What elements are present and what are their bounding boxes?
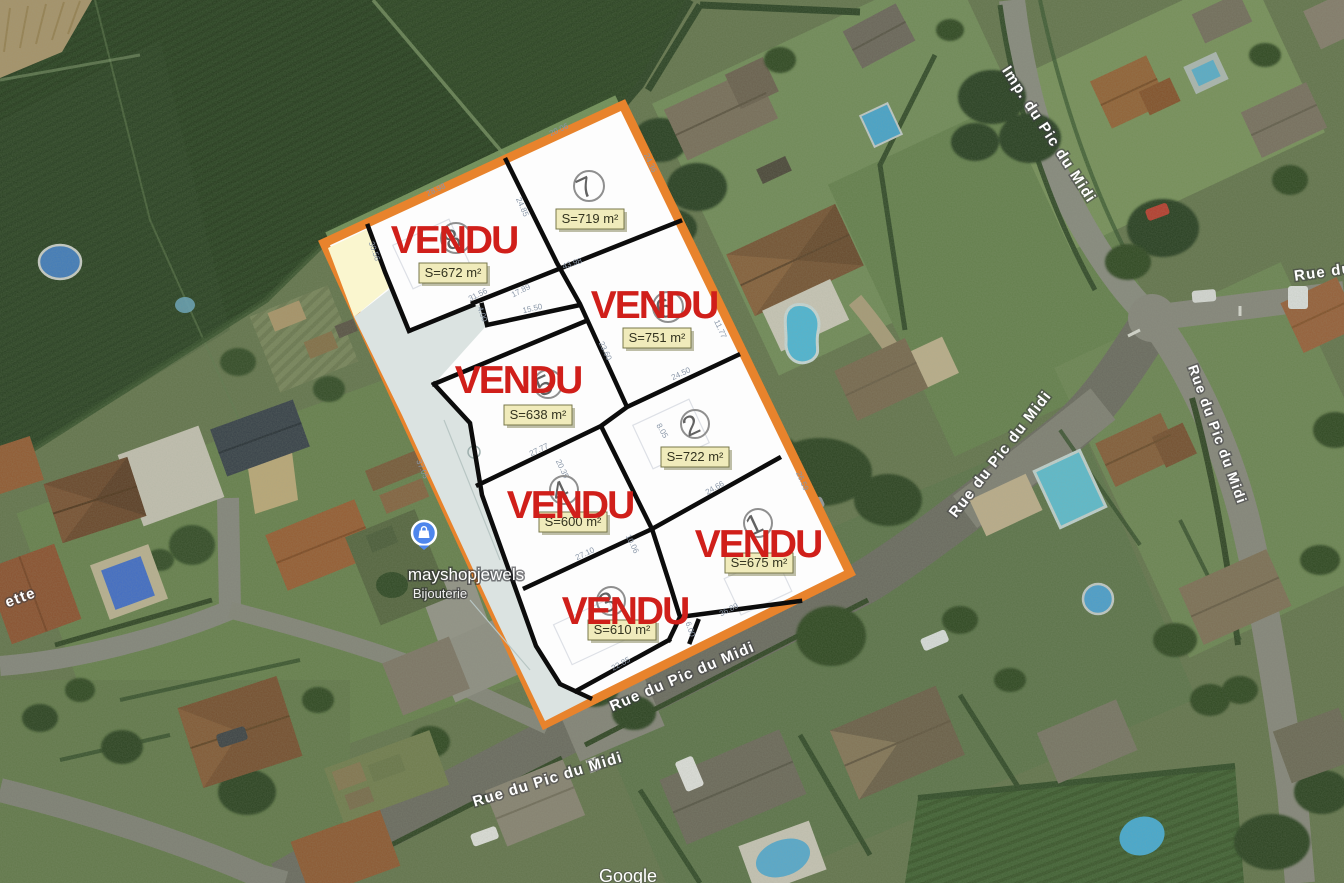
svg-text:VENDU: VENDU xyxy=(695,523,822,566)
svg-text:mayshopjewels: mayshopjewels xyxy=(408,565,524,584)
svg-text:VENDU: VENDU xyxy=(391,219,518,262)
svg-text:S=719 m²: S=719 m² xyxy=(562,211,619,226)
svg-text:S=672 m²: S=672 m² xyxy=(425,265,482,280)
svg-text:Bijouterie: Bijouterie xyxy=(413,586,467,601)
svg-text:Google: Google xyxy=(599,866,657,883)
svg-text:VENDU: VENDU xyxy=(591,284,718,327)
svg-text:VENDU: VENDU xyxy=(507,484,634,527)
svg-text:S=751 m²: S=751 m² xyxy=(629,330,686,345)
svg-text:VENDU: VENDU xyxy=(455,359,582,402)
svg-text:VENDU: VENDU xyxy=(562,590,689,633)
svg-text:S=638 m²: S=638 m² xyxy=(510,407,567,422)
svg-text:S=722 m²: S=722 m² xyxy=(667,449,724,464)
